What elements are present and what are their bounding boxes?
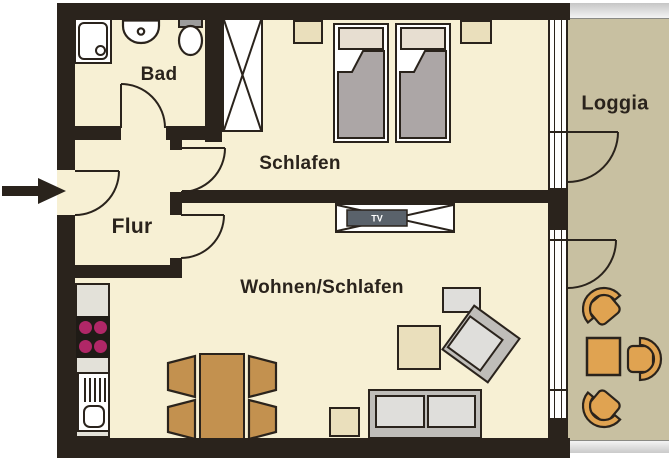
facade-pier-mid bbox=[548, 188, 568, 230]
nightstand bbox=[293, 20, 323, 44]
window-transom bbox=[550, 131, 566, 133]
room-label-flur: Flur bbox=[112, 215, 153, 239]
room-label-loggia: Loggia bbox=[581, 93, 648, 116]
sofa-cushion bbox=[427, 395, 476, 428]
loggia-floor bbox=[568, 3, 669, 458]
wall-top bbox=[57, 3, 570, 20]
wall-left-upper bbox=[57, 3, 75, 170]
wall-hall-right-mid bbox=[170, 192, 182, 215]
shower-drain-icon bbox=[95, 45, 106, 56]
wall-bottom bbox=[57, 438, 570, 458]
wall-bathroom-right bbox=[205, 20, 222, 142]
wall-bathroom-bottom-right bbox=[166, 126, 222, 140]
wall-bathroom-bottom-left bbox=[75, 126, 121, 140]
wardrobe bbox=[222, 18, 263, 132]
facade-pier-bottom bbox=[548, 418, 568, 438]
dining-table bbox=[199, 353, 245, 440]
wall-room-divider bbox=[182, 190, 548, 203]
room-label-schlafen: Schlafen bbox=[259, 153, 341, 175]
tv-sideboard bbox=[335, 203, 455, 233]
burner-icon bbox=[94, 340, 107, 353]
sofa-cushion bbox=[375, 395, 425, 428]
burner-icon bbox=[79, 340, 92, 353]
loggia-railing-bottom bbox=[570, 440, 669, 454]
floor-plan: TV bbox=[0, 0, 669, 458]
loggia-railing-gap bbox=[570, 453, 669, 458]
shower bbox=[74, 18, 112, 64]
kitchen-sink bbox=[77, 372, 110, 432]
sink-basin bbox=[83, 405, 105, 428]
pillow bbox=[338, 27, 384, 50]
burner-icon bbox=[94, 321, 107, 334]
nightstand bbox=[460, 20, 492, 44]
side-table bbox=[397, 325, 441, 370]
sink-drainer bbox=[84, 378, 106, 402]
side-table-small bbox=[329, 407, 360, 437]
cooktop bbox=[76, 316, 110, 358]
burner-icon bbox=[79, 321, 92, 334]
window-transom bbox=[550, 389, 566, 391]
window-transom bbox=[550, 239, 566, 241]
wall-hall-right-upper bbox=[170, 140, 182, 150]
wall-hall-bottom bbox=[75, 265, 182, 278]
room-label-wohnen: Wohnen/Schlafen bbox=[240, 277, 404, 299]
loggia-railing-top bbox=[570, 3, 669, 19]
wall-left-lower bbox=[57, 215, 75, 458]
room-label-bad: Bad bbox=[141, 64, 178, 86]
pillow bbox=[400, 27, 446, 50]
